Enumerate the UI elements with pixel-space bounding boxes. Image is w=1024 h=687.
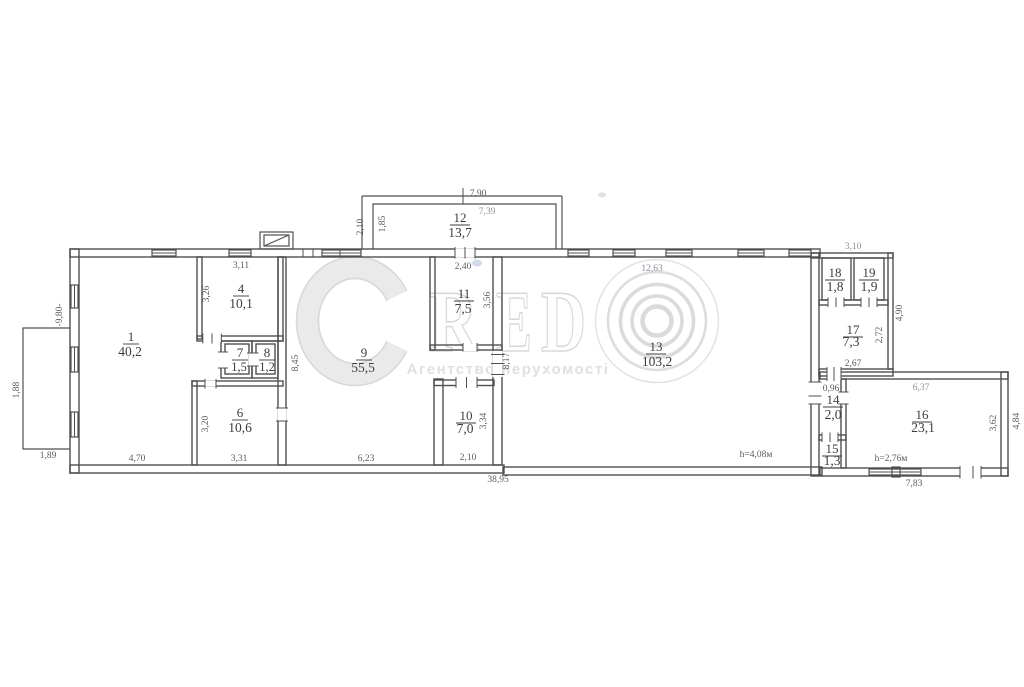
svg-text:1,89: 1,89: [40, 451, 57, 461]
svg-text:4: 4: [238, 281, 245, 296]
svg-text:3,10: 3,10: [845, 242, 862, 252]
svg-text:3,56: 3,56: [483, 291, 493, 308]
svg-text:3,62: 3,62: [989, 414, 999, 431]
svg-text:7,39: 7,39: [479, 207, 496, 217]
svg-text:1,3: 1,3: [824, 453, 841, 468]
svg-text:3,34: 3,34: [479, 412, 489, 429]
svg-text:1,88: 1,88: [12, 381, 22, 398]
svg-text:13: 13: [650, 339, 663, 354]
svg-text:1: 1: [128, 329, 135, 344]
svg-text:R: R: [429, 274, 479, 371]
svg-text:3,20: 3,20: [201, 415, 211, 432]
svg-text:2,10: 2,10: [356, 218, 366, 235]
svg-text:D: D: [541, 274, 586, 371]
svg-text:4,90: 4,90: [895, 304, 905, 321]
svg-text:1,9: 1,9: [861, 279, 878, 294]
svg-text:1,85: 1,85: [378, 215, 388, 232]
svg-text:8,17: 8,17: [502, 352, 512, 369]
svg-text:1,8: 1,8: [827, 279, 844, 294]
svg-text:1,2: 1,2: [259, 360, 275, 374]
svg-text:0,96: 0,96: [823, 384, 840, 394]
svg-text:40,2: 40,2: [118, 344, 142, 359]
svg-text:8: 8: [264, 345, 271, 360]
svg-text:12: 12: [454, 210, 467, 225]
svg-text:2,67: 2,67: [845, 359, 862, 369]
svg-text:18: 18: [829, 265, 842, 280]
svg-text:6: 6: [237, 405, 244, 420]
svg-text:2,10: 2,10: [460, 453, 477, 463]
svg-text:3,31: 3,31: [231, 454, 248, 464]
svg-text:7,90: 7,90: [470, 189, 487, 199]
svg-text:7,0: 7,0: [457, 421, 474, 436]
svg-text:h=2,76м: h=2,76м: [875, 454, 908, 464]
svg-text:38,95: 38,95: [487, 475, 509, 485]
svg-text:10,1: 10,1: [229, 296, 253, 311]
svg-text:13,7: 13,7: [448, 225, 472, 240]
svg-text:10,6: 10,6: [228, 420, 252, 435]
svg-text:11: 11: [458, 286, 471, 301]
svg-text:4,84: 4,84: [1012, 412, 1022, 429]
svg-text:1,5: 1,5: [231, 360, 247, 374]
svg-text:8,45: 8,45: [291, 354, 301, 371]
svg-text:2,0: 2,0: [825, 407, 842, 422]
svg-text:9: 9: [361, 345, 368, 360]
svg-text:2,72: 2,72: [875, 326, 885, 343]
svg-text:7,3: 7,3: [843, 334, 860, 349]
svg-text:-9,80-: -9,80-: [55, 304, 65, 327]
svg-text:12,63: 12,63: [641, 264, 663, 274]
svg-text:3,11: 3,11: [233, 261, 250, 271]
svg-text:14: 14: [827, 392, 841, 407]
svg-text:55,5: 55,5: [351, 360, 375, 375]
svg-text:7: 7: [237, 345, 244, 360]
svg-text:7,5: 7,5: [455, 301, 472, 316]
svg-text:103,2: 103,2: [642, 354, 672, 369]
svg-text:3,26: 3,26: [202, 285, 212, 302]
svg-text:h=4,08м: h=4,08м: [740, 450, 773, 460]
svg-text:6,37: 6,37: [913, 383, 930, 393]
svg-text:2,40: 2,40: [455, 262, 472, 272]
svg-text:7,83: 7,83: [906, 479, 923, 489]
svg-text:19: 19: [863, 265, 876, 280]
svg-text:23,1: 23,1: [911, 420, 935, 435]
svg-text:6,23: 6,23: [358, 454, 375, 464]
svg-text:4,70: 4,70: [129, 454, 146, 464]
